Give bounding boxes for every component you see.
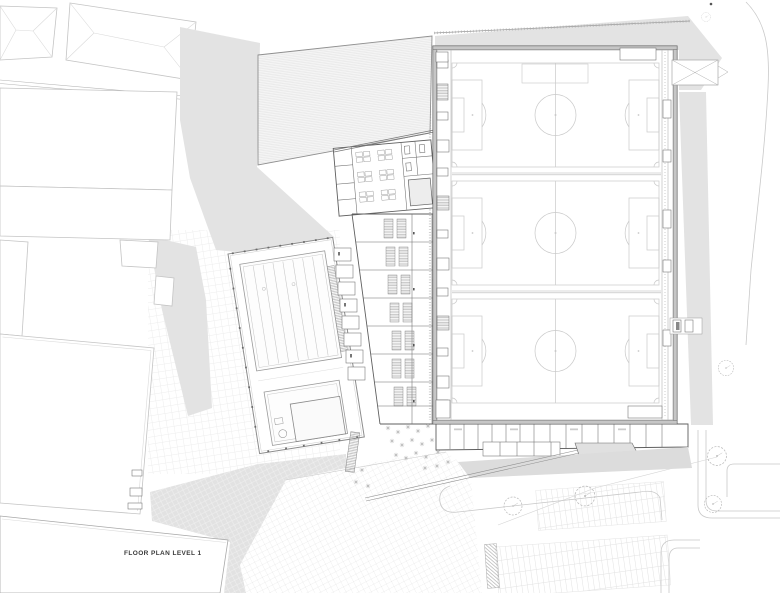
main-pool — [240, 251, 342, 371]
teaching-pool — [264, 380, 348, 445]
tree-icon — [718, 360, 733, 375]
entry-arrow-icon — [718, 66, 728, 78]
site-gray-right-wedge — [679, 92, 713, 425]
floor-plan-canvas: FLOOR PLAN LEVEL 1 — [0, 0, 780, 593]
sports-hall — [433, 46, 677, 424]
parking-lots — [484, 482, 670, 593]
locker-benches — [384, 219, 416, 406]
west-service-strip — [437, 60, 449, 408]
site-plan-svg — [0, 0, 780, 593]
tree-icon — [702, 13, 711, 22]
south-wing — [436, 424, 692, 478]
survey-dot — [710, 3, 713, 6]
floor-plan-title: FLOOR PLAN LEVEL 1 — [124, 550, 202, 557]
tree-icon — [708, 447, 727, 466]
tree-icon — [704, 495, 721, 512]
office-block — [333, 140, 437, 216]
meeting-table — [408, 178, 432, 206]
context-building-roofs — [0, 3, 196, 80]
